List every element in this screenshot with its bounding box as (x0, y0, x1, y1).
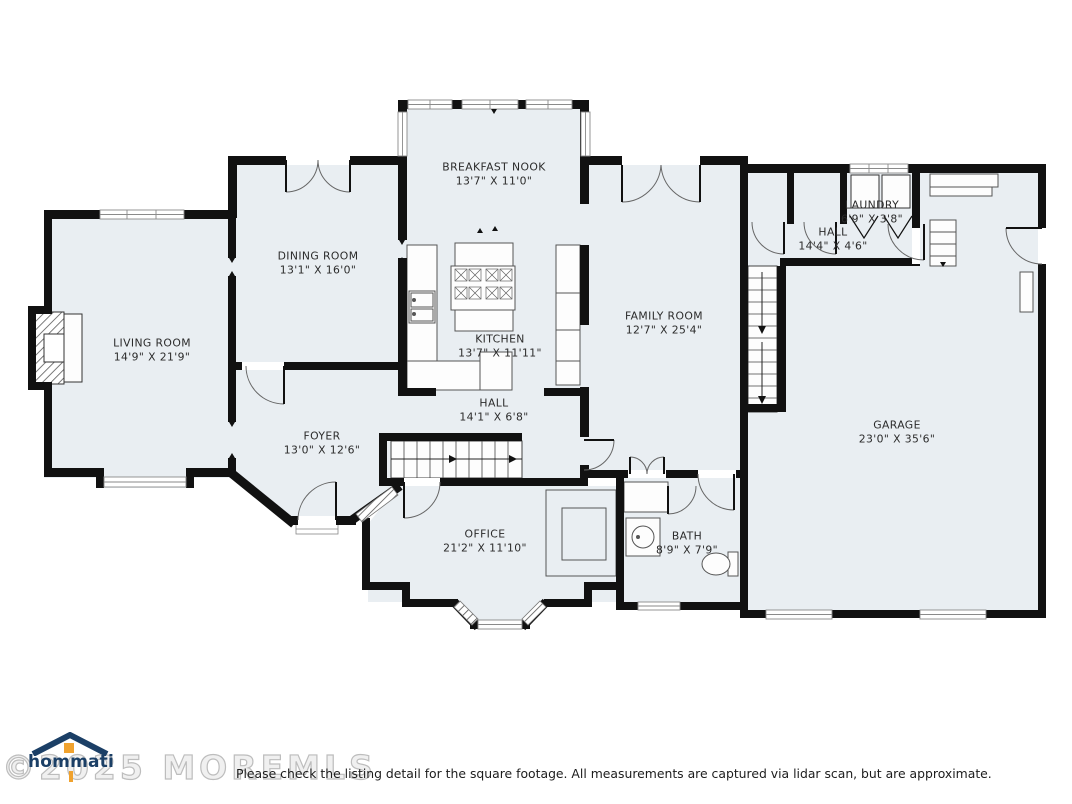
fireplace (34, 312, 82, 384)
room-label-family-room: FAMILY ROOM 12'7" X 25'4" (625, 310, 703, 337)
room-label-foyer: FOYER 13'0" X 12'6" (284, 430, 361, 457)
room-dims: 14'9" X 21'9" (113, 350, 191, 364)
room-label-kitchen: KITCHEN 13'7" X 11'11" (458, 333, 542, 360)
room-dims: 14'4" X 4'6" (798, 239, 867, 253)
room-name: DINING ROOM (278, 250, 359, 264)
room-label-breakfast-nook: BREAKFAST NOOK 13'7" X 11'0" (442, 161, 545, 188)
room-dims: 8'9" X 7'9" (656, 543, 718, 557)
room-dims: 21'2" X 11'10" (443, 541, 527, 555)
logo-text: hommati (28, 752, 114, 772)
room-name: FAMILY ROOM (625, 310, 703, 324)
room-dims: 6'9" X 3'8" (841, 212, 903, 226)
room-name: GARAGE (859, 419, 936, 433)
logo-wordmark: hommati (28, 753, 112, 789)
logo-accent-mark (69, 771, 73, 782)
stairs-basement (748, 266, 777, 412)
room-name: LAUNDRY (841, 199, 903, 213)
room-dims: 23'0" X 35'6" (859, 432, 936, 446)
room-label-bath: BATH 8'9" X 7'9" (656, 530, 718, 557)
room-name: HALL (459, 397, 528, 411)
disclaimer-text: Please check the listing detail for the … (236, 766, 992, 781)
room-label-garage: GARAGE 23'0" X 35'6" (859, 419, 936, 446)
room-name: FOYER (284, 430, 361, 444)
room-label-hall-lower: HALL 14'1" X 6'8" (459, 397, 528, 424)
room-dims: 12'7" X 25'4" (625, 323, 703, 337)
room-name: HALL (798, 226, 867, 240)
room-dims: 13'7" X 11'0" (442, 174, 545, 188)
room-name: LIVING ROOM (113, 337, 191, 351)
stairs-main (391, 441, 522, 478)
room-name: BREAKFAST NOOK (442, 161, 545, 175)
room-label-laundry: LAUNDRY 6'9" X 3'8" (841, 199, 903, 226)
room-dims: 13'7" X 11'11" (458, 346, 542, 360)
page: { "plan": { "floor_color": "#e9eef2", "w… (0, 0, 1072, 804)
room-dims: 14'1" X 6'8" (459, 410, 528, 424)
footer: ©2025 MOREMLS hommati Please check the l… (0, 700, 1072, 804)
room-name: BATH (656, 530, 718, 544)
front-porch-step (296, 524, 338, 534)
room-label-office: OFFICE 21'2" X 11'10" (443, 528, 527, 555)
hommati-logo: hommati (28, 732, 112, 789)
room-dims: 13'0" X 12'6" (284, 443, 361, 457)
room-name: KITCHEN (458, 333, 542, 347)
room-name: OFFICE (443, 528, 527, 542)
room-label-dining-room: DINING ROOM 13'1" X 16'0" (278, 250, 359, 277)
room-dims: 13'1" X 16'0" (278, 263, 359, 277)
floor-plan: BREAKFAST NOOK 13'7" X 11'0" DINING ROOM… (0, 0, 1072, 700)
room-label-hall-upper: HALL 14'4" X 4'6" (798, 226, 867, 253)
room-label-living-room: LIVING ROOM 14'9" X 21'9" (113, 337, 191, 364)
